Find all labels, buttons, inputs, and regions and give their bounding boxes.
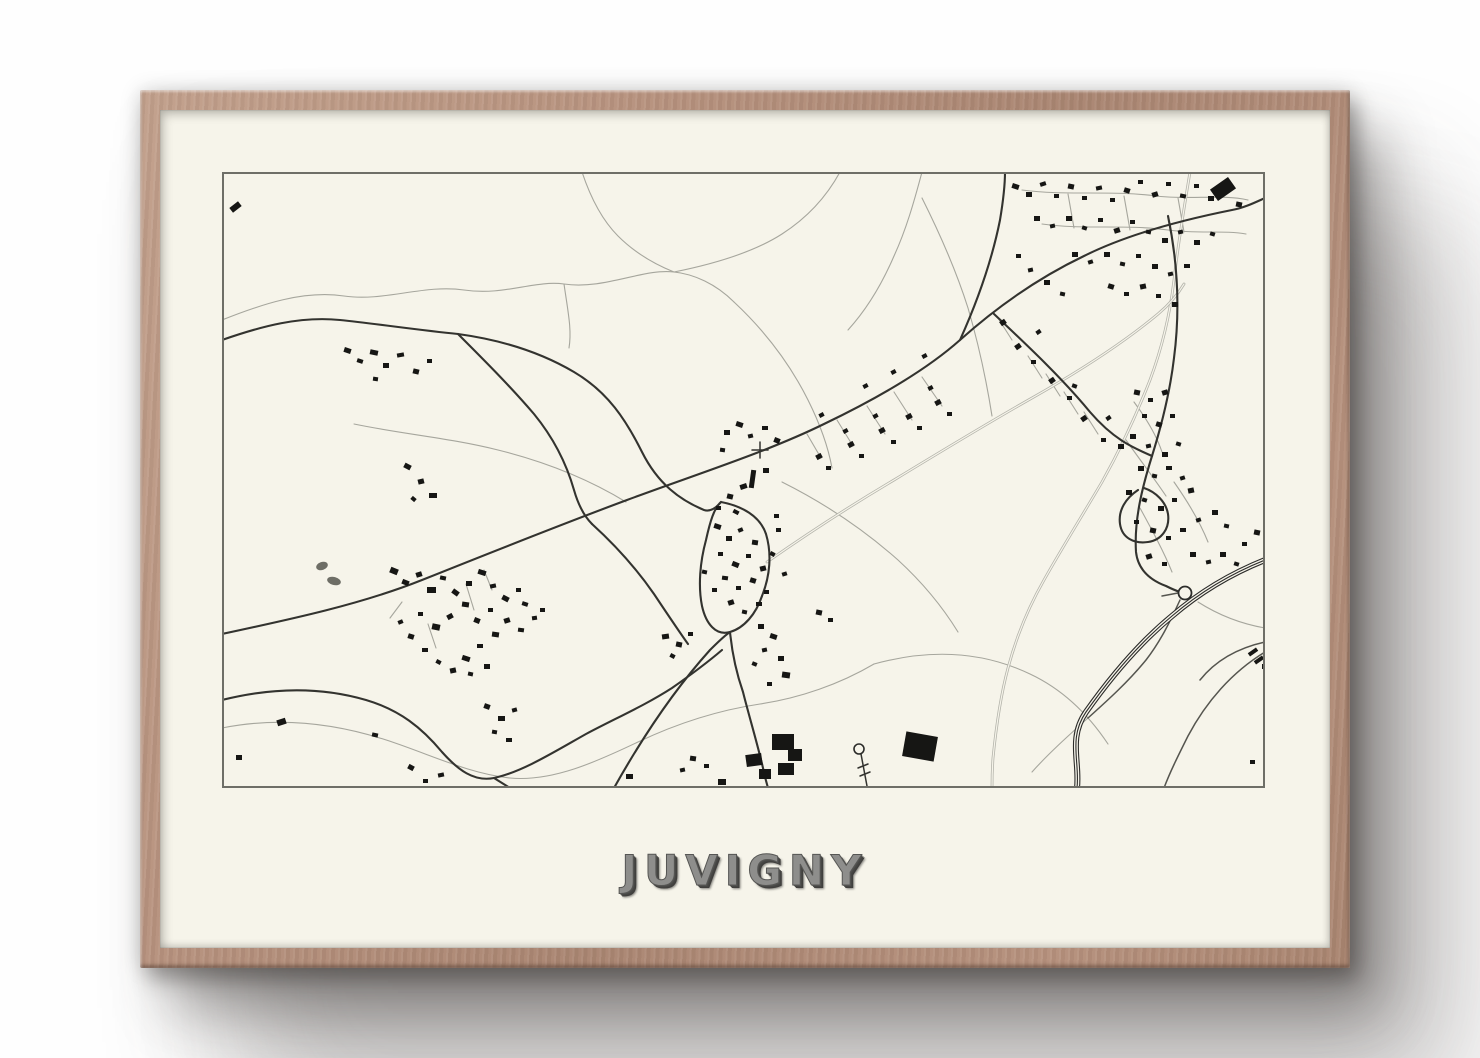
building xyxy=(1096,185,1103,190)
building xyxy=(782,571,788,576)
stream xyxy=(992,172,1190,788)
building xyxy=(1110,198,1115,202)
building xyxy=(1054,194,1059,198)
building xyxy=(440,575,447,580)
building xyxy=(626,774,633,779)
building xyxy=(1194,184,1199,188)
building xyxy=(415,571,422,578)
main-road xyxy=(592,524,688,644)
building xyxy=(756,602,762,606)
poster-paper: JUVIGNY xyxy=(160,110,1330,948)
building xyxy=(1134,389,1141,395)
building xyxy=(1180,528,1186,532)
building xyxy=(1040,181,1047,187)
building xyxy=(1254,655,1264,664)
building xyxy=(1088,259,1094,264)
building xyxy=(1044,280,1050,285)
building xyxy=(512,707,518,712)
building xyxy=(518,628,524,633)
building xyxy=(1113,227,1120,234)
building xyxy=(762,426,768,430)
minor-road xyxy=(1198,602,1265,628)
stream-fill xyxy=(992,172,1190,788)
building xyxy=(788,749,802,761)
building xyxy=(516,588,521,592)
building xyxy=(1068,183,1075,189)
minor-road xyxy=(782,482,958,632)
building xyxy=(370,349,379,356)
building xyxy=(229,201,241,213)
building xyxy=(917,426,922,430)
building xyxy=(1098,218,1103,222)
building xyxy=(769,633,777,640)
building xyxy=(1180,475,1186,480)
building xyxy=(1148,398,1153,402)
minor-road xyxy=(1124,196,1130,230)
building xyxy=(1105,415,1111,421)
building xyxy=(891,440,896,444)
building xyxy=(704,764,709,768)
building xyxy=(1134,520,1139,524)
map-symbol xyxy=(861,754,867,786)
building xyxy=(461,655,470,662)
building xyxy=(343,347,351,354)
building xyxy=(1136,254,1141,258)
building xyxy=(1123,187,1130,194)
building xyxy=(1082,196,1087,200)
city-map xyxy=(222,172,1265,788)
building xyxy=(872,413,878,419)
main-road xyxy=(960,172,1005,340)
building xyxy=(397,352,405,357)
building xyxy=(718,552,723,556)
building xyxy=(713,523,721,530)
building xyxy=(680,768,686,773)
building xyxy=(1234,561,1240,566)
building xyxy=(1150,527,1157,533)
building xyxy=(1152,474,1158,479)
building xyxy=(450,667,457,673)
building xyxy=(423,779,428,783)
building xyxy=(1162,562,1167,566)
poster-title-row: JUVIGNY xyxy=(160,846,1330,895)
building xyxy=(1142,414,1147,418)
building xyxy=(772,734,794,750)
minor-road xyxy=(874,654,1108,744)
water-tower xyxy=(854,744,864,754)
building xyxy=(774,514,779,518)
building xyxy=(727,599,734,606)
building xyxy=(862,383,868,389)
building xyxy=(731,561,739,568)
building xyxy=(1101,438,1106,442)
building xyxy=(1140,283,1147,289)
building xyxy=(484,664,490,669)
building xyxy=(778,656,784,661)
building xyxy=(1145,553,1152,560)
building xyxy=(498,716,505,721)
main-road xyxy=(1136,456,1180,592)
building xyxy=(1254,529,1261,535)
building xyxy=(477,569,486,576)
building xyxy=(1130,434,1136,439)
building xyxy=(1146,444,1152,449)
building xyxy=(702,570,708,575)
building xyxy=(1048,377,1056,385)
minor-road xyxy=(564,284,570,348)
building xyxy=(1138,180,1143,184)
building xyxy=(412,368,419,374)
minor-road xyxy=(354,424,626,502)
building xyxy=(669,653,675,659)
building xyxy=(429,493,437,498)
building xyxy=(532,616,538,621)
building xyxy=(1212,510,1218,515)
building xyxy=(758,624,764,629)
building xyxy=(1060,292,1066,297)
building xyxy=(1248,647,1258,656)
building xyxy=(759,769,771,779)
building xyxy=(1224,524,1230,529)
map-svg xyxy=(222,172,1265,788)
building xyxy=(716,506,721,510)
building xyxy=(1035,329,1041,335)
building xyxy=(662,634,670,640)
building xyxy=(1120,262,1126,267)
building xyxy=(676,641,683,647)
building xyxy=(1107,283,1114,290)
building xyxy=(1166,182,1171,186)
building xyxy=(389,567,399,576)
building xyxy=(890,369,896,375)
building xyxy=(776,528,781,532)
building xyxy=(503,617,510,624)
building xyxy=(1168,272,1174,277)
building xyxy=(435,659,441,665)
building xyxy=(752,540,759,546)
building xyxy=(732,509,739,515)
building xyxy=(842,428,848,434)
building xyxy=(1166,536,1171,540)
building xyxy=(427,359,432,363)
building xyxy=(1016,254,1021,258)
building xyxy=(501,595,510,603)
building xyxy=(1184,264,1190,268)
building xyxy=(1178,230,1184,235)
building xyxy=(403,463,412,471)
building xyxy=(737,527,743,533)
building xyxy=(763,468,769,473)
building xyxy=(383,363,389,368)
building xyxy=(720,448,726,453)
main-road xyxy=(700,502,770,633)
building xyxy=(736,586,741,590)
building xyxy=(1156,294,1161,298)
building xyxy=(722,576,728,581)
minor-road xyxy=(1084,412,1098,434)
building xyxy=(778,763,794,775)
building xyxy=(735,421,743,428)
building xyxy=(902,731,938,761)
building xyxy=(739,483,747,490)
building xyxy=(473,617,480,624)
building xyxy=(483,703,490,710)
building xyxy=(410,496,416,502)
building xyxy=(767,682,772,686)
building xyxy=(1152,264,1158,269)
building xyxy=(818,412,824,418)
building xyxy=(1236,201,1243,207)
building xyxy=(742,610,748,615)
building xyxy=(746,554,751,558)
building xyxy=(490,583,497,588)
building xyxy=(506,738,512,742)
building xyxy=(1206,560,1212,565)
building xyxy=(477,644,483,648)
building xyxy=(1082,225,1088,230)
building xyxy=(1242,542,1247,546)
building xyxy=(1011,183,1019,190)
building xyxy=(276,718,286,726)
building xyxy=(522,601,529,607)
building xyxy=(468,672,474,677)
building xyxy=(492,632,500,638)
pond xyxy=(315,560,329,572)
minor-road xyxy=(390,602,402,618)
building xyxy=(1176,441,1182,446)
minor-road xyxy=(222,664,874,779)
building xyxy=(762,648,768,653)
building xyxy=(422,648,428,652)
building xyxy=(397,619,403,625)
building xyxy=(462,602,470,608)
building xyxy=(745,753,763,767)
building xyxy=(488,608,493,612)
building xyxy=(1220,552,1226,557)
building xyxy=(357,358,364,364)
building xyxy=(1142,497,1148,502)
building xyxy=(1072,252,1078,257)
building xyxy=(417,478,424,484)
building xyxy=(748,433,754,438)
building xyxy=(759,565,766,571)
medium-road xyxy=(1162,593,1178,596)
minor-road xyxy=(582,172,674,272)
building xyxy=(1028,268,1034,273)
building xyxy=(1170,414,1175,418)
building xyxy=(764,590,769,594)
building xyxy=(418,612,423,616)
building xyxy=(726,536,732,541)
building xyxy=(1172,498,1177,502)
picture-frame: JUVIGNY xyxy=(140,90,1350,968)
building xyxy=(1067,396,1072,400)
building xyxy=(1162,238,1168,243)
building xyxy=(407,633,414,640)
building xyxy=(847,441,855,448)
building xyxy=(749,470,756,489)
building xyxy=(1104,252,1110,257)
main-road xyxy=(458,334,592,524)
building xyxy=(690,756,697,762)
building xyxy=(1162,452,1168,457)
building xyxy=(1194,240,1200,245)
building xyxy=(749,577,756,584)
main-road xyxy=(222,650,722,779)
building xyxy=(466,581,472,586)
building xyxy=(688,632,693,636)
minor-road xyxy=(1068,194,1074,228)
minor-road xyxy=(222,272,734,320)
building xyxy=(1158,506,1164,511)
building xyxy=(751,661,757,667)
building xyxy=(438,772,445,777)
building xyxy=(828,618,833,622)
building xyxy=(724,430,730,435)
building xyxy=(1050,224,1056,229)
building xyxy=(407,764,415,771)
poster-title: JUVIGNY xyxy=(622,846,869,895)
building xyxy=(826,466,831,470)
roundabout xyxy=(1179,587,1192,600)
building xyxy=(1151,191,1158,198)
building xyxy=(1014,343,1022,351)
building xyxy=(1071,383,1077,388)
building xyxy=(1066,216,1072,221)
building xyxy=(815,453,823,460)
building xyxy=(1031,360,1036,364)
building xyxy=(1126,490,1132,495)
minor-road xyxy=(848,172,922,330)
building xyxy=(782,671,791,678)
building xyxy=(816,609,823,615)
building xyxy=(1188,487,1195,493)
building xyxy=(431,623,440,631)
building xyxy=(492,730,498,735)
building xyxy=(921,353,927,359)
building xyxy=(1208,196,1214,201)
building xyxy=(451,588,460,596)
building xyxy=(1034,216,1040,221)
building xyxy=(1124,292,1129,296)
building xyxy=(726,493,733,499)
medium-road xyxy=(1164,652,1265,788)
building xyxy=(1026,192,1032,197)
building xyxy=(859,454,864,458)
pond xyxy=(326,575,342,586)
building xyxy=(1250,760,1255,764)
building xyxy=(1118,444,1124,449)
building xyxy=(1166,466,1172,470)
building xyxy=(236,755,242,760)
building xyxy=(540,608,545,612)
minor-road xyxy=(674,172,840,272)
building xyxy=(947,412,952,416)
building xyxy=(1130,220,1135,224)
minor-road xyxy=(922,198,992,416)
photo-scene: JUVIGNY xyxy=(0,0,1480,1058)
building xyxy=(1138,466,1144,471)
building xyxy=(718,779,726,785)
building xyxy=(1190,552,1196,557)
building xyxy=(712,588,717,592)
building xyxy=(1172,302,1178,307)
building xyxy=(427,587,436,593)
building xyxy=(373,377,379,382)
building xyxy=(446,613,454,620)
building xyxy=(372,732,379,737)
